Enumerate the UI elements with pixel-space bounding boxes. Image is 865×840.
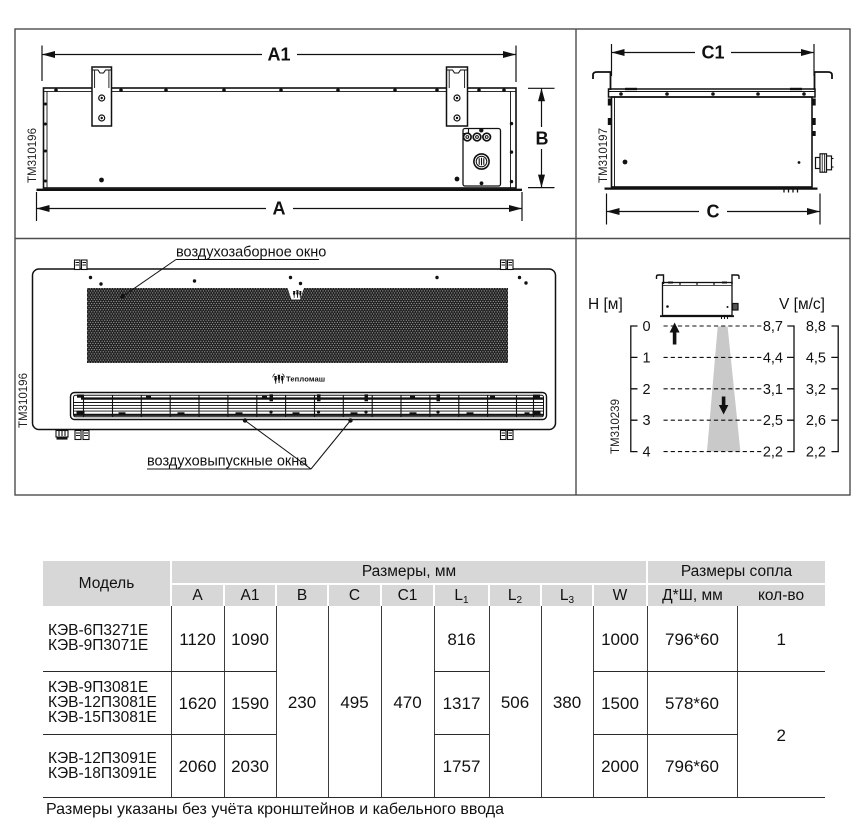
svg-text:воздухозаборное окно: воздухозаборное окно (176, 245, 326, 261)
svg-text:C1: C1 (701, 43, 724, 63)
svg-text:8,7: 8,7 (763, 319, 783, 335)
svg-text:Тепломаш: Тепломаш (286, 374, 325, 383)
svg-text:2,2: 2,2 (806, 445, 826, 461)
svg-text:3,2: 3,2 (806, 382, 826, 398)
svg-text:V [м/с]: V [м/с] (779, 296, 825, 313)
svg-text:4,4: 4,4 (763, 350, 783, 366)
svg-text:TM310196: TM310196 (27, 128, 39, 183)
svg-text:4,5: 4,5 (806, 350, 826, 366)
svg-text:2: 2 (642, 382, 650, 398)
svg-text:A: A (273, 199, 286, 219)
svg-text:TM310239: TM310239 (610, 399, 622, 454)
svg-text:8,8: 8,8 (806, 319, 826, 335)
svg-text:3: 3 (642, 413, 650, 429)
svg-text:TM310197: TM310197 (598, 128, 610, 183)
svg-text:2,6: 2,6 (806, 413, 826, 429)
svg-text:Н [м]: Н [м] (588, 296, 623, 313)
svg-text:C: C (707, 202, 720, 222)
svg-text:4: 4 (642, 445, 650, 461)
svg-text:2,2: 2,2 (763, 445, 783, 461)
svg-text:воздуховыпускные окна: воздуховыпускные окна (147, 454, 308, 470)
svg-text:A1: A1 (267, 45, 290, 65)
svg-text:TM310196: TM310196 (18, 373, 30, 428)
svg-text:1: 1 (642, 350, 650, 366)
svg-text:3,1: 3,1 (763, 382, 783, 398)
svg-text:B: B (536, 129, 549, 149)
svg-text:2,5: 2,5 (763, 413, 783, 429)
svg-text:0: 0 (642, 319, 650, 335)
